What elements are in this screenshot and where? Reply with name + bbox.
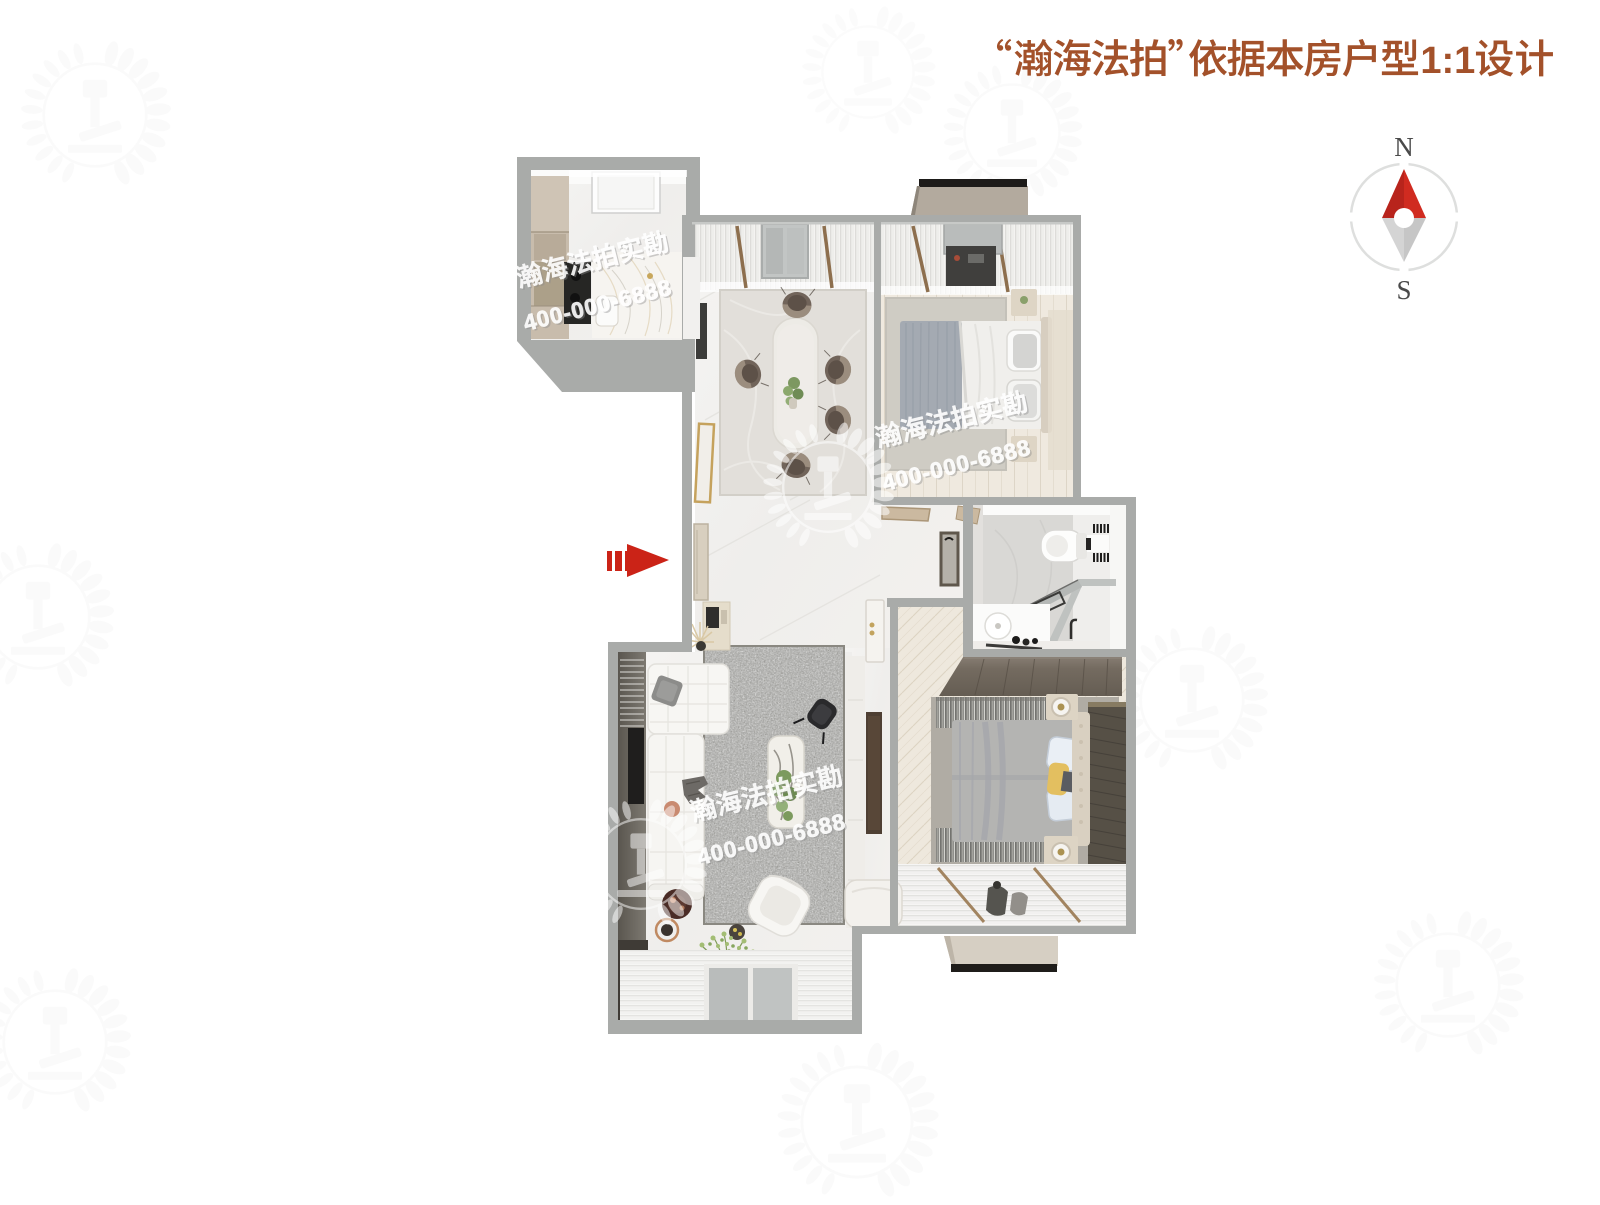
svg-text:N: N xyxy=(1394,132,1414,162)
svg-text:1:1: 1:1 xyxy=(1420,40,1475,82)
svg-text:S: S xyxy=(1396,275,1411,305)
